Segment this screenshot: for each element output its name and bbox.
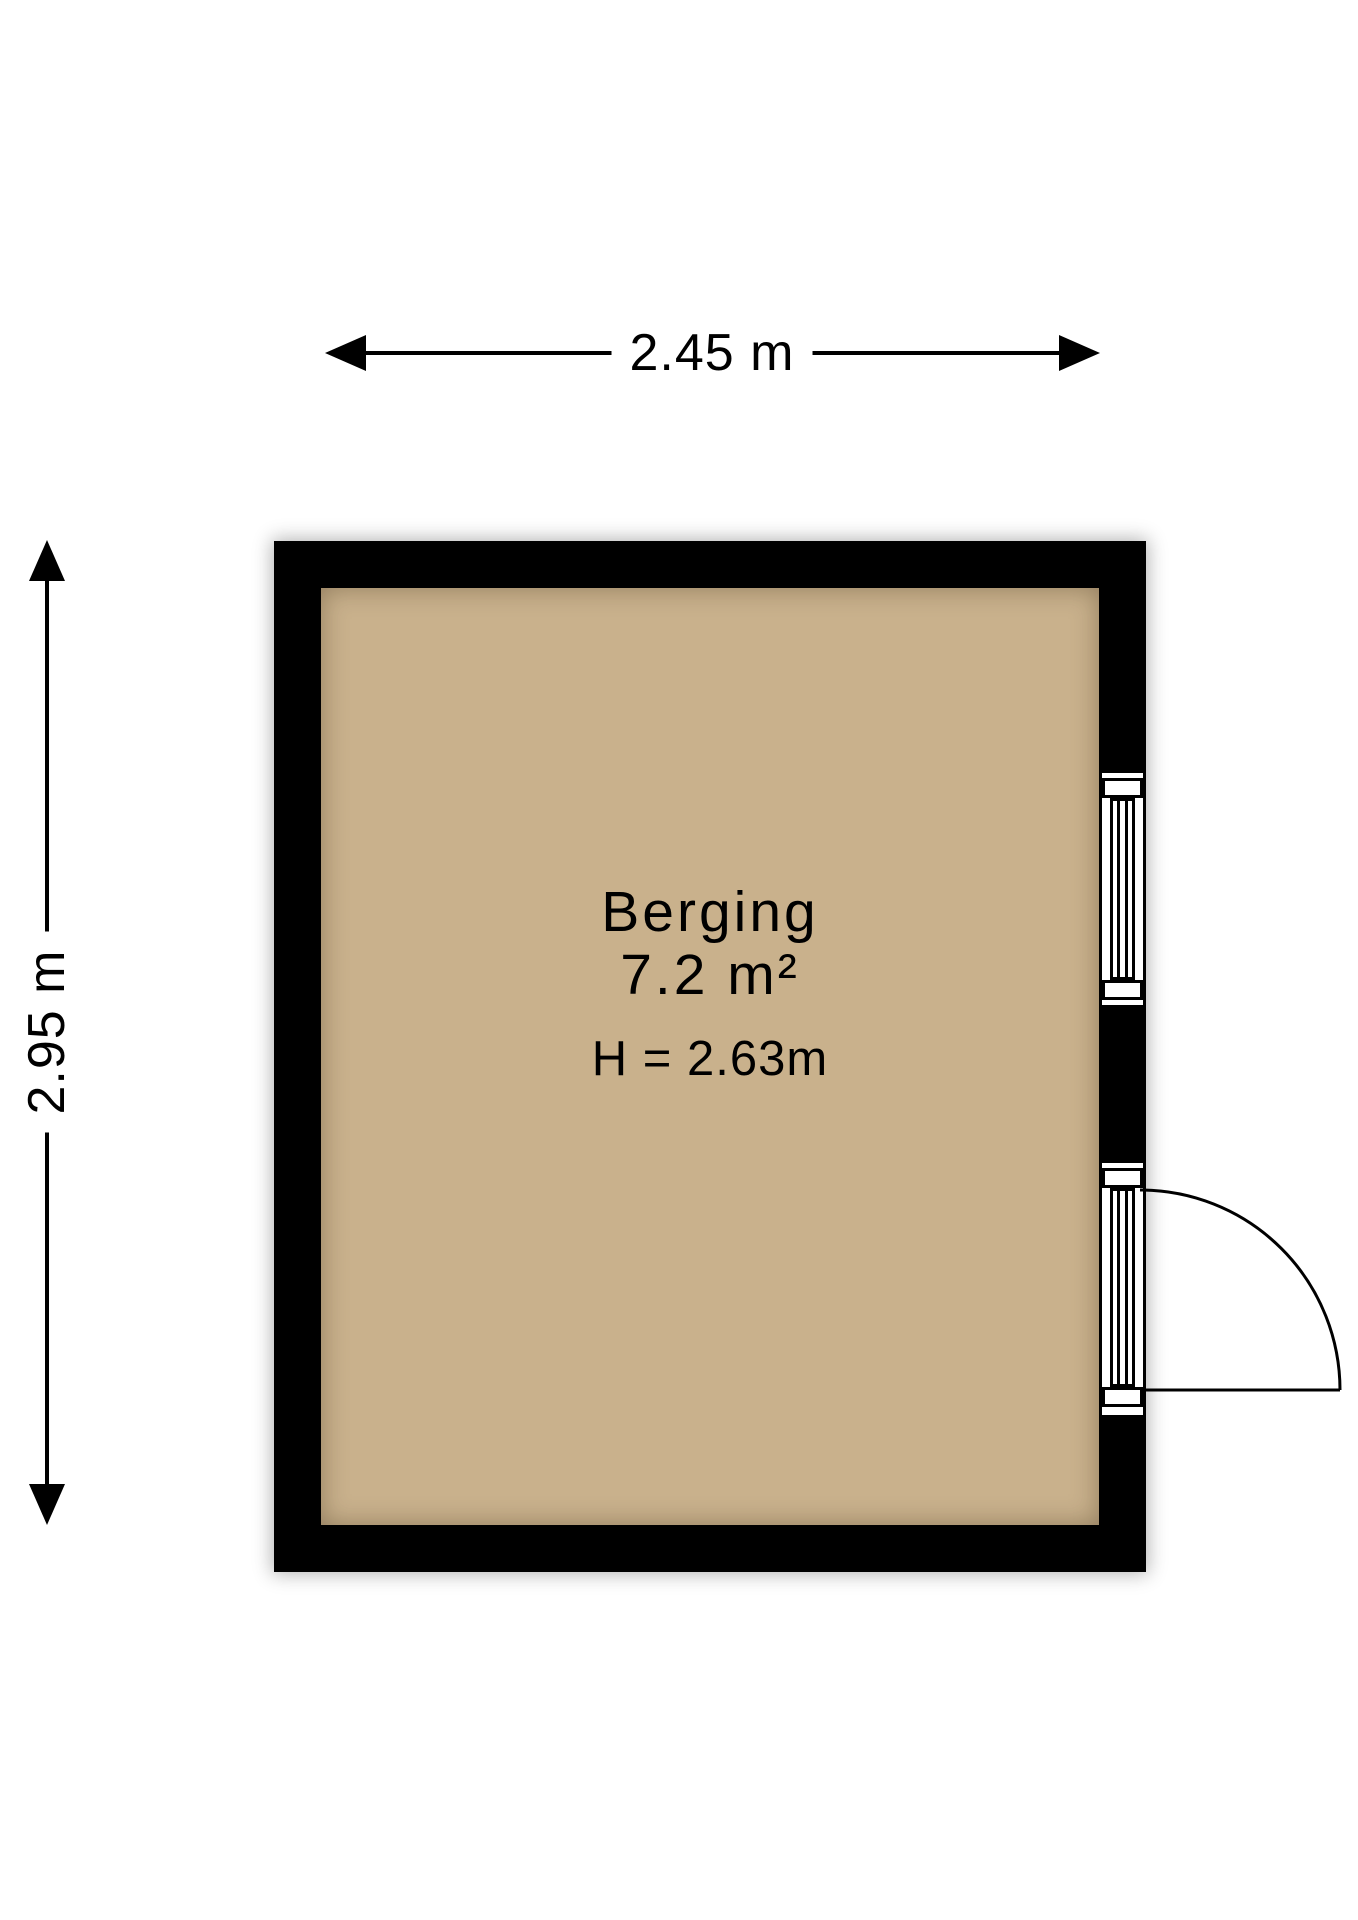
width-dimension-label: 2.45 m — [612, 323, 813, 383]
arrowhead-left-icon — [325, 335, 366, 371]
room-ceiling-height: H = 2.63m — [321, 1032, 1099, 1086]
window-mullion-icon — [1117, 801, 1120, 977]
room-labels: Berging 7.2 m² H = 2.63m — [321, 880, 1099, 1086]
door-frame-bottom — [1102, 1387, 1143, 1407]
window-glazing — [1110, 798, 1135, 980]
arrowhead-down-icon — [29, 1484, 65, 1525]
window-symbol — [1099, 773, 1146, 1005]
room-area: 7.2 m² — [321, 944, 1099, 1006]
door-swing-arc — [1140, 1190, 1340, 1390]
arrowhead-up-icon — [29, 540, 65, 581]
door-symbol — [1099, 1163, 1146, 1415]
height-dimension-label: 2.95 m — [17, 932, 77, 1133]
arrowhead-right-icon — [1059, 335, 1100, 371]
room-walls: Berging 7.2 m² H = 2.63m — [274, 541, 1146, 1572]
room-floor: Berging 7.2 m² H = 2.63m — [321, 588, 1099, 1525]
floorplan: Berging 7.2 m² H = 2.63m 2.45 m 2.95 m — [0, 0, 1358, 1920]
window-mullion-icon — [1125, 801, 1128, 977]
door-swing — [1140, 1190, 1340, 1390]
room-name: Berging — [321, 880, 1099, 944]
door-frame-top — [1102, 1168, 1143, 1188]
door-panel — [1110, 1188, 1135, 1387]
door-panel-line-icon — [1117, 1191, 1120, 1384]
window-frame-bottom — [1102, 980, 1143, 1000]
window-frame-top — [1102, 778, 1143, 798]
door-panel-line-icon — [1125, 1191, 1128, 1384]
